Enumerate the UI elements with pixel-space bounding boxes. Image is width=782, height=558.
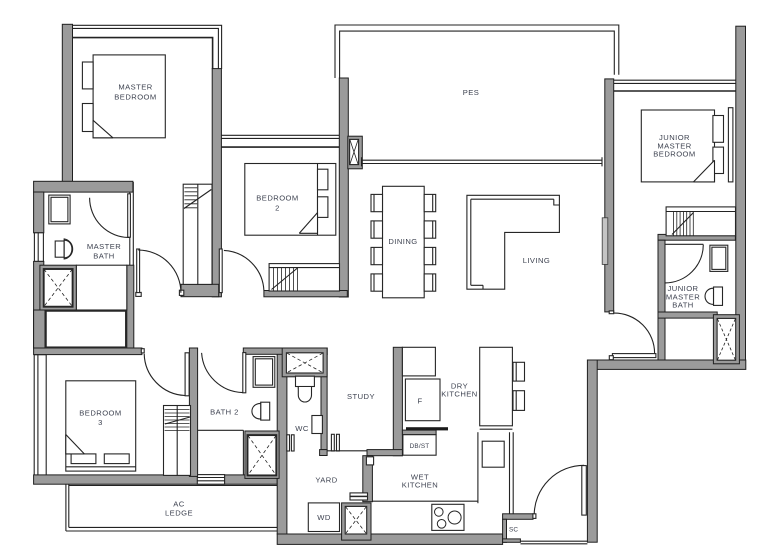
svg-text:SC: SC [509,527,518,534]
svg-text:LIVING: LIVING [523,256,551,265]
svg-text:F: F [417,397,422,406]
svg-text:WC: WC [295,424,309,433]
svg-text:BEDROOM: BEDROOM [79,409,121,418]
svg-text:KITCHEN: KITCHEN [441,389,477,398]
svg-text:AC: AC [173,500,185,509]
svg-text:PES: PES [463,88,480,97]
svg-text:BEDROOM: BEDROOM [114,93,156,102]
svg-text:BEDROOM: BEDROOM [653,150,695,159]
svg-text:STUDY: STUDY [347,392,375,401]
svg-text:BEDROOM: BEDROOM [256,194,298,203]
svg-text:BATH: BATH [672,301,694,310]
svg-text:MASTER: MASTER [87,242,121,251]
svg-text:LEDGE: LEDGE [165,509,193,518]
svg-text:BATH 2: BATH 2 [210,407,239,416]
svg-text:DINING: DINING [388,237,417,246]
svg-text:WD: WD [317,513,331,522]
svg-text:YARD: YARD [315,475,337,484]
svg-text:MASTER: MASTER [118,83,152,92]
svg-text:2: 2 [275,204,280,213]
svg-text:DB/ST: DB/ST [410,443,430,450]
svg-text:3: 3 [98,418,103,427]
svg-text:KITCHEN: KITCHEN [402,481,438,490]
svg-text:BATH: BATH [93,252,115,261]
